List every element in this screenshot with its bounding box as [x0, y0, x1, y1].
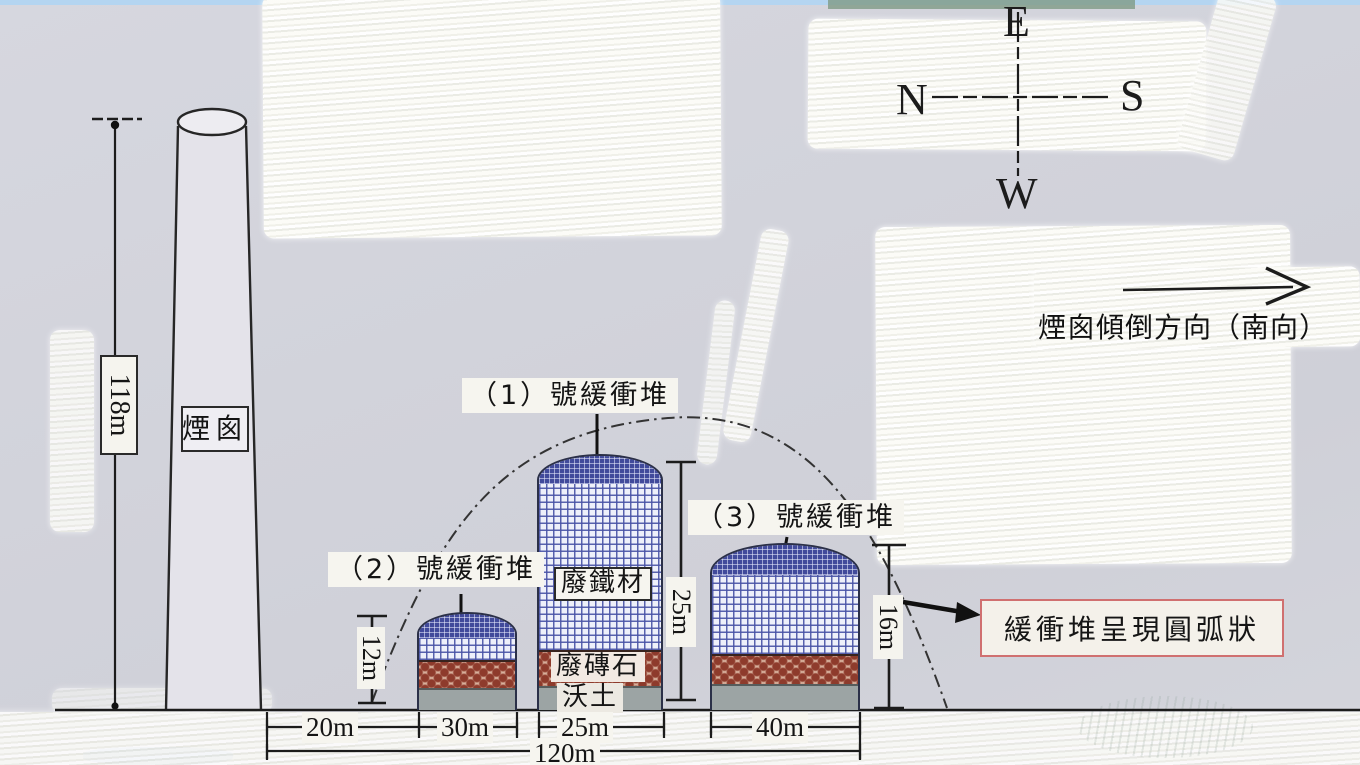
pile1-iron-cap [539, 456, 661, 486]
compass-south: S [1120, 70, 1144, 121]
distance-20m-label: 20m [302, 712, 358, 743]
pile2-soil-layer [419, 688, 515, 710]
pile3-iron-cap [712, 545, 858, 577]
scrap-iron-label: 廢鐵材 [554, 567, 652, 601]
scanned-diagram-canvas: （1）號緩衝堆 （2）號緩衝堆 （3）號緩衝堆 廢鐵材 廢磚石 沃土 煙囪 11… [0, 0, 1360, 765]
pile1-label: （1）號緩衝堆 [462, 378, 678, 413]
buffer-pile-2 [417, 612, 517, 710]
buffer-pile-3 [710, 543, 860, 710]
dim-118m-bottom-dot [111, 702, 118, 709]
note-arrow [903, 602, 981, 623]
dim-118m-top-dot [111, 121, 119, 129]
arc-note-box: 緩衝堆呈現圓弧狀 [980, 599, 1284, 657]
distance-total-label: 120m [530, 738, 600, 765]
pile2-iron-layer [419, 638, 515, 660]
pile3-brick-layer [712, 654, 858, 686]
pile2-height-label: 12m [357, 627, 385, 689]
pile2-brick-layer [419, 660, 515, 690]
pile3-height-label: 16m [873, 595, 903, 659]
scrap-brick-label: 廢磚石 [551, 652, 645, 682]
pile1-height-label: 25m [666, 577, 696, 647]
pile3-soil-layer [712, 684, 858, 710]
chimney-label: 煙囪 [181, 406, 249, 452]
toppling-arrow [1123, 268, 1307, 304]
soil-label: 沃土 [557, 683, 623, 713]
pile2-label: （2）號緩衝堆 [328, 552, 544, 587]
pile2-iron-cap [419, 614, 515, 640]
compass-west: W [996, 168, 1038, 219]
distance-30m-label: 30m [437, 712, 493, 743]
chimney-top-ellipse [178, 109, 246, 135]
toppling-direction-text: 煙囪傾倒方向（南向） [1038, 306, 1360, 346]
pile3-iron-layer [712, 575, 858, 654]
chimney-height-label: 118m [100, 355, 138, 455]
compass-north: N [896, 74, 928, 125]
distance-40m-label: 40m [752, 712, 808, 743]
pile3-label: （3）號緩衝堆 [688, 500, 904, 535]
compass-east: E [1003, 0, 1030, 47]
